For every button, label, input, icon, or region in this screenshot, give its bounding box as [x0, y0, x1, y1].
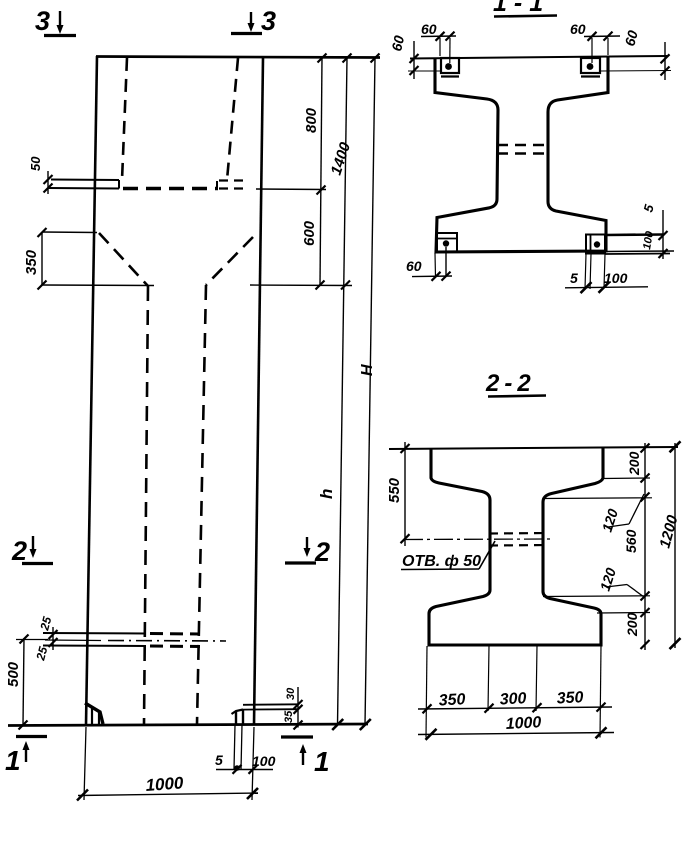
svg-text:1000: 1000: [505, 714, 542, 733]
svg-text:2: 2: [314, 537, 330, 567]
svg-text:30: 30: [285, 687, 297, 700]
svg-text:100: 100: [641, 229, 656, 250]
svg-text:5: 5: [215, 752, 223, 768]
svg-text:35: 35: [283, 710, 295, 723]
svg-text:120: 120: [597, 566, 620, 593]
svg-text:1: 1: [314, 746, 330, 777]
svg-text:2: 2: [11, 536, 27, 566]
svg-text:500: 500: [5, 661, 22, 687]
svg-text:1400: 1400: [328, 140, 355, 178]
svg-text:25: 25: [33, 645, 50, 663]
svg-text:200: 200: [626, 451, 642, 476]
svg-text:50: 50: [28, 156, 43, 171]
svg-text:350: 350: [556, 689, 584, 707]
svg-text:h: h: [317, 489, 336, 499]
svg-text:600: 600: [301, 220, 318, 246]
svg-text:H: H: [359, 364, 376, 376]
svg-text:60: 60: [621, 28, 641, 47]
svg-text:60: 60: [570, 21, 586, 37]
svg-text:5: 5: [570, 270, 578, 286]
svg-text:60: 60: [406, 258, 422, 274]
svg-text:550: 550: [386, 477, 403, 503]
svg-text:350: 350: [23, 249, 40, 275]
svg-text:100: 100: [252, 753, 276, 769]
svg-text:1200: 1200: [656, 513, 681, 550]
svg-text:1000: 1000: [145, 773, 185, 795]
svg-text:60: 60: [388, 34, 407, 53]
svg-text:60: 60: [421, 21, 437, 37]
svg-text:2-2: 2-2: [485, 370, 536, 397]
svg-text:300: 300: [499, 690, 527, 708]
svg-text:25: 25: [37, 615, 54, 633]
svg-text:350: 350: [438, 691, 466, 709]
svg-text:200: 200: [624, 612, 640, 637]
svg-text:3: 3: [261, 6, 276, 36]
svg-text:800: 800: [303, 107, 320, 133]
svg-text:3: 3: [35, 6, 50, 36]
svg-text:560: 560: [623, 529, 639, 553]
svg-text:5: 5: [640, 202, 657, 214]
svg-text:ОТВ. ф 50: ОТВ. ф 50: [402, 553, 481, 570]
svg-text:120: 120: [599, 507, 622, 534]
svg-text:1: 1: [5, 745, 21, 776]
